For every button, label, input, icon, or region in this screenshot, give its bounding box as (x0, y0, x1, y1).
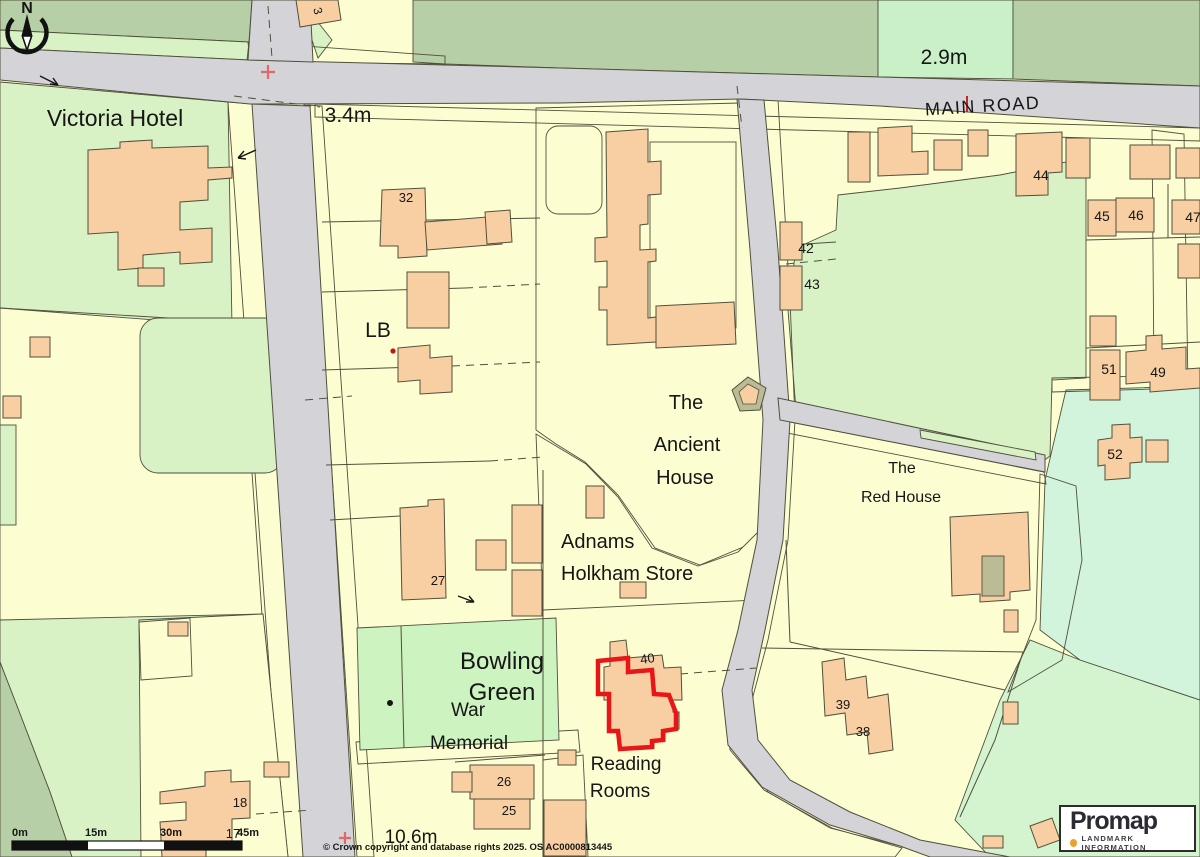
map-label-victoria-hotel: Victoria Hotel (47, 105, 183, 131)
map-label-38: 38 (856, 724, 870, 739)
map-label-adnams: Adnams (561, 531, 634, 553)
os-map: N 0m15m30m45m © Crown copyright and data… (0, 0, 1200, 857)
scale-label-15m: 15m (85, 827, 107, 839)
map-label-51: 51 (1101, 361, 1117, 377)
promap-logo: Promap LANDMARK INFORMATION (1059, 805, 1196, 852)
map-label-17: 17 (226, 826, 240, 841)
map-label-39: 39 (836, 697, 850, 712)
map-label-46: 46 (1128, 207, 1144, 223)
map-label-reading: Reading (591, 754, 662, 775)
map-label-26: 26 (497, 774, 511, 789)
map-label-2-9m: 2.9m (921, 46, 968, 69)
map-label-45: 45 (1094, 208, 1110, 224)
building-38-39 (822, 658, 893, 754)
map-label-40: 40 (639, 650, 655, 667)
map-label-49: 49 (1150, 364, 1166, 380)
map-label-43: 43 (804, 276, 820, 292)
map-label-18: 18 (233, 795, 247, 810)
scale-label-0m: 0m (12, 827, 28, 839)
map-label-10-6m: 10.6m (385, 827, 438, 848)
map-label-42: 42 (798, 240, 814, 256)
map-label-holkham-store: Holkham Store (561, 563, 693, 585)
war-memorial-dot (387, 700, 393, 706)
map-label-lb: LB (365, 319, 391, 342)
map-label-the: The (888, 460, 916, 477)
copyright-notice: © Crown copyright and database rights 20… (323, 842, 613, 853)
promap-dot-icon (1070, 839, 1077, 847)
map-label-memorial: Memorial (430, 733, 508, 754)
map-label-house: House (656, 467, 714, 489)
promap-wordmark: Promap (1070, 808, 1194, 834)
lb-dot (390, 348, 395, 353)
map-label-red-house: Red House (861, 489, 941, 506)
map-label-3-4m: 3.4m (325, 104, 372, 127)
map-label-25: 25 (502, 803, 516, 818)
scale-label-30m: 30m (160, 827, 182, 839)
map-label-war: War (451, 700, 486, 721)
scale-label-45m: 45m (237, 827, 259, 839)
map-label-rooms: Rooms (590, 781, 650, 802)
map-label-32: 32 (399, 190, 413, 205)
map-label-bowling: Bowling (460, 648, 544, 675)
map-label-the: The (669, 392, 703, 414)
building-43 (780, 266, 802, 310)
map-label-44: 44 (1033, 167, 1049, 183)
map-label-47: 47 (1185, 209, 1200, 225)
promap-tagline: LANDMARK INFORMATION (1081, 834, 1194, 852)
map-label-52: 52 (1107, 446, 1123, 462)
map-label-ancient: Ancient (654, 434, 721, 456)
map-label-27: 27 (431, 573, 445, 588)
map-canvas[interactable]: N 0m15m30m45m © Crown copyright and data… (0, 0, 1200, 857)
compass-north-label: N (21, 0, 33, 17)
